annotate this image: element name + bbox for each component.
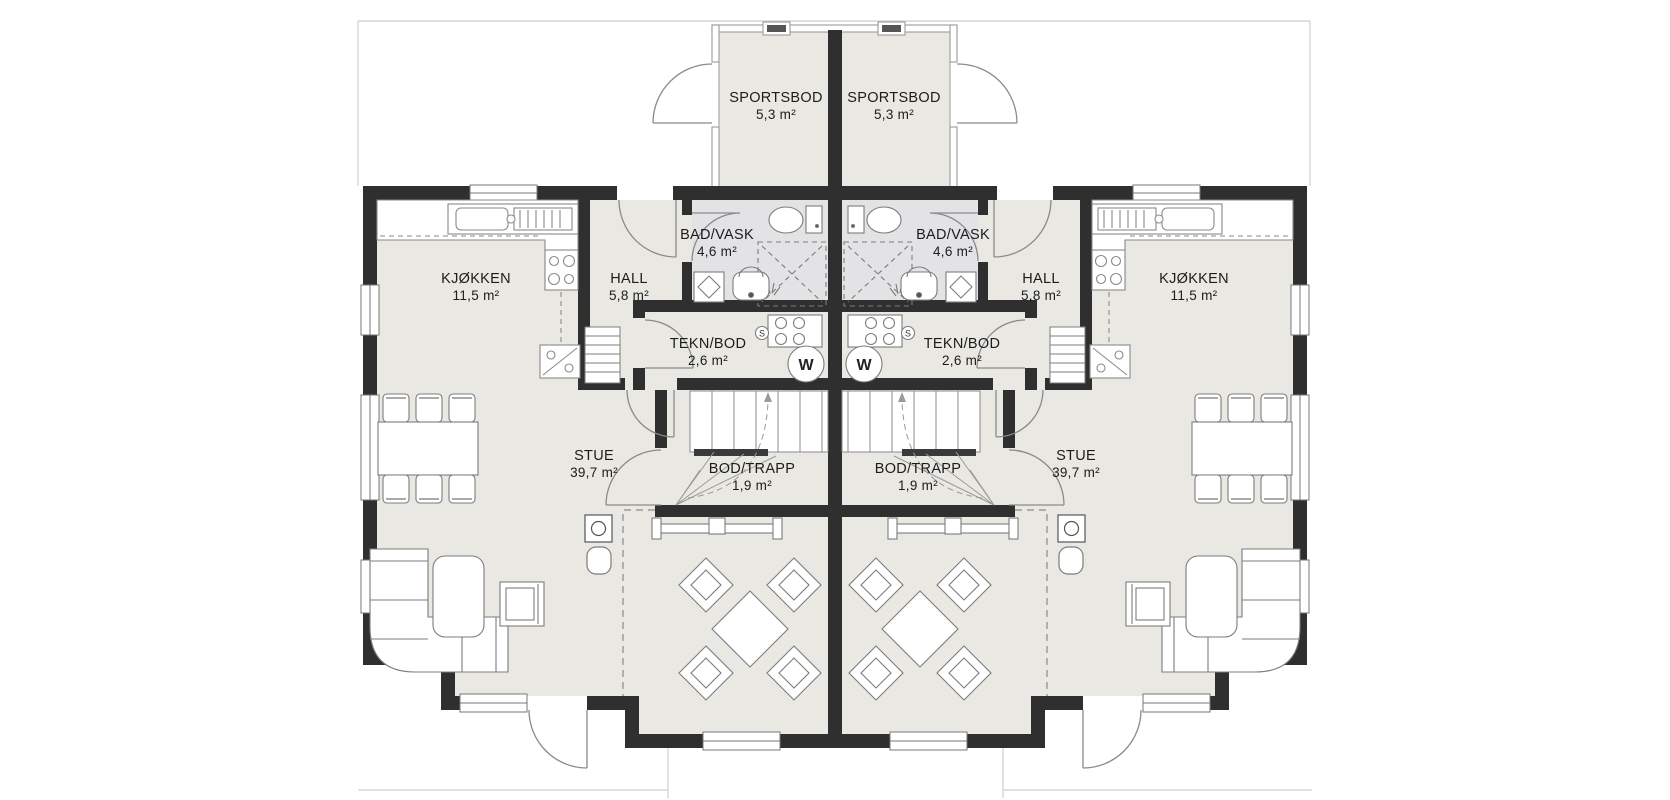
room-label-kitchen-left: KJØKKEN11,5 m² [441, 271, 511, 303]
cabinet-icon [946, 272, 976, 302]
window [361, 285, 379, 335]
window [470, 185, 537, 201]
window [1133, 185, 1200, 201]
sportsbod-door-right [957, 64, 1017, 123]
svg-text:W: W [856, 357, 872, 374]
kitchen-sink-icon [448, 204, 578, 234]
fridge-icon [1090, 345, 1130, 378]
window [703, 732, 780, 750]
water-heater-icon: W [788, 346, 824, 382]
armchair-left [500, 582, 544, 626]
stove-icon [1092, 250, 1125, 290]
sportsbod-door-left [653, 64, 712, 123]
entry-door-bottom-left [529, 710, 587, 768]
hall-stairs-left [585, 327, 620, 383]
room-label-livingroom-right: STUE39,7 m² [1052, 448, 1100, 480]
stove-icon [545, 250, 578, 290]
room-label-stairs-left: BOD/TRAPP1,9 m² [709, 461, 796, 493]
coffee-table-right [1186, 556, 1237, 637]
armchair-right [1126, 582, 1170, 626]
dining-set-right [1192, 394, 1292, 503]
window [1143, 694, 1210, 712]
svg-text:S: S [759, 329, 765, 339]
floor-plan-page: S W S W [0, 0, 1670, 800]
kitchen-sink-icon [1092, 204, 1222, 234]
svg-text:W: W [798, 357, 814, 374]
room-label-bath-right: BAD/VASK4,6 m² [916, 227, 990, 259]
room-label-stairs-right: BOD/TRAPP1,9 m² [875, 461, 962, 493]
dining-set-left [378, 394, 478, 503]
toilet-icon [769, 206, 822, 233]
coffee-table-left [433, 556, 484, 637]
dining-table [378, 422, 478, 475]
dining-table [1192, 422, 1292, 475]
room-label-bath-left: BAD/VASK4,6 m² [680, 227, 754, 259]
window [460, 694, 527, 712]
washer-icon [768, 315, 822, 347]
floor-plan-drawing: S W S W [0, 0, 1670, 800]
room-label-tech-right: TEKN/BOD2,6 m² [924, 336, 1001, 368]
entry-door-bottom-right [1083, 710, 1141, 768]
toilet-icon [848, 206, 901, 233]
cabinet-icon [694, 272, 724, 302]
room-label-kitchen-right: KJØKKEN11,5 m² [1159, 271, 1229, 303]
room-label-livingroom-left: STUE39,7 m² [570, 448, 618, 480]
window [890, 732, 967, 750]
hall-stairs-right [1050, 327, 1085, 383]
window [361, 395, 379, 500]
washer-icon [848, 315, 902, 347]
floor-drain-icon: S [756, 327, 769, 340]
window [1291, 395, 1309, 500]
room-label-hall-left: HALL5,8 m² [609, 271, 649, 303]
svg-text:S: S [905, 329, 911, 339]
water-heater-icon: W [846, 346, 882, 382]
fridge-icon [540, 345, 580, 378]
room-label-sportsbod-left: SPORTSBOD5,3 m² [729, 90, 822, 122]
window [1291, 285, 1309, 335]
room-label-tech-left: TEKN/BOD2,6 m² [670, 336, 747, 368]
floor-drain-icon: S [902, 327, 915, 340]
room-label-hall-right: HALL5,8 m² [1021, 271, 1061, 303]
room-label-sportsbod-right: SPORTSBOD5,3 m² [847, 90, 940, 122]
